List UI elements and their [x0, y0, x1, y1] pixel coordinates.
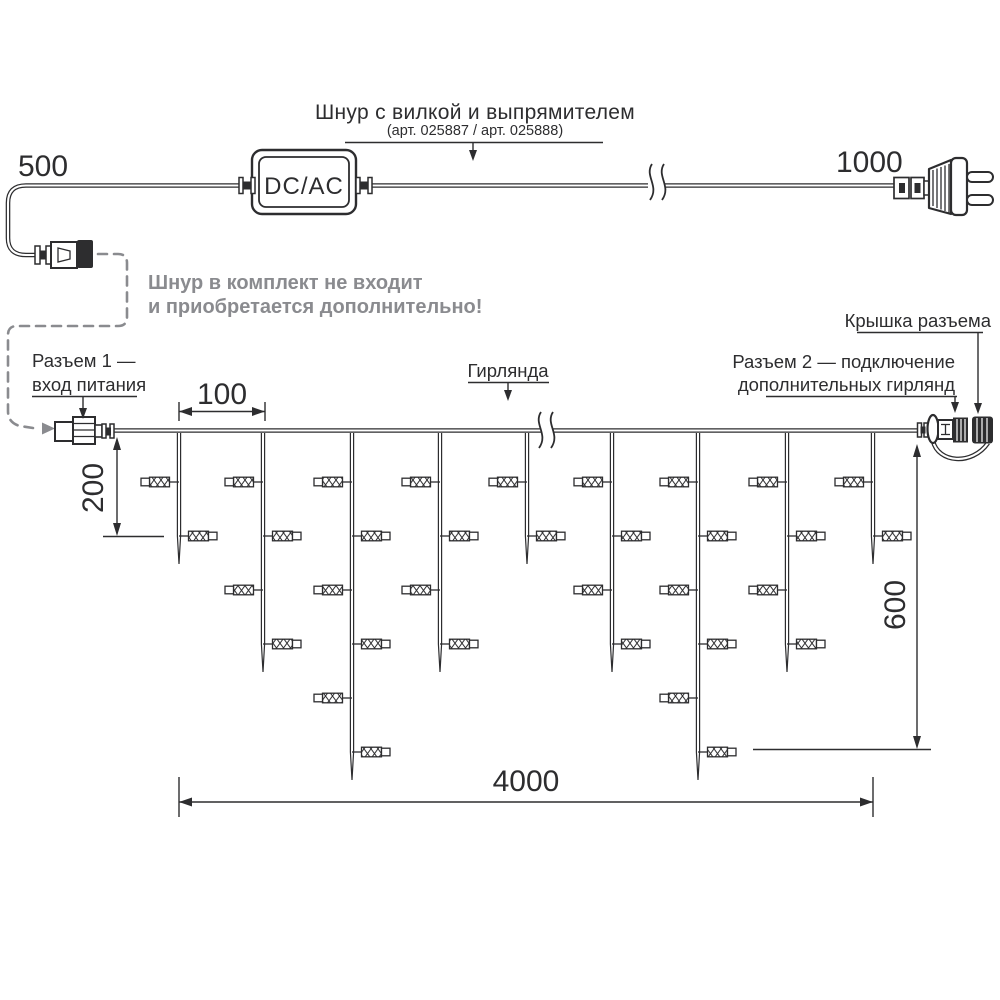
icicle-light	[612, 531, 650, 541]
light-bulb-body	[189, 531, 209, 541]
icicle-light	[440, 639, 478, 649]
light-bulb-body	[362, 639, 382, 649]
dcac-label: DC/AC	[264, 173, 344, 200]
light-bulb-cap	[402, 478, 411, 486]
dcac-left-connector	[239, 178, 255, 194]
icicle-drop-wire	[438, 433, 441, 672]
light-bulb-body	[273, 531, 293, 541]
icicle-light	[489, 477, 527, 487]
light-bulb-body	[323, 693, 343, 703]
light-bulb-body	[583, 585, 603, 595]
dim-1000-label: 1000	[836, 146, 903, 179]
light-bulb-body	[362, 747, 382, 757]
light-bulb-body	[450, 531, 470, 541]
garland-break-icon	[539, 412, 555, 448]
icicle-light	[225, 585, 263, 595]
garland-input-connector	[55, 417, 114, 444]
icicle-drops-layer	[141, 433, 911, 780]
light-bulb-body	[411, 477, 431, 487]
light-bulb-cap	[382, 748, 391, 756]
icicle-light	[314, 477, 352, 487]
dim-500-label: 500	[18, 150, 68, 183]
light-bulb-cap	[293, 640, 302, 648]
icicle-light	[749, 585, 787, 595]
icicle-light	[574, 585, 612, 595]
light-bulb-body	[273, 639, 293, 649]
light-bulb-cap	[903, 532, 912, 540]
svg-text:Крышка разъема: Крышка разъема	[845, 310, 992, 331]
light-bulb-body	[669, 693, 689, 703]
light-bulb-cap	[660, 694, 669, 702]
note-line1: Шнур в комплект не входит	[148, 272, 423, 294]
icicle-light	[873, 531, 911, 541]
icicle-drop-wire	[871, 433, 874, 564]
light-bulb-body	[669, 585, 689, 595]
light-bulb-body	[411, 585, 431, 595]
icicle-light	[612, 639, 650, 649]
dcac-converter: DC/AC	[239, 150, 372, 214]
svg-text:Разъем 1 —: Разъем 1 —	[32, 350, 136, 371]
light-bulb-body	[758, 585, 778, 595]
icicle-light	[314, 693, 352, 703]
icicle-light	[749, 477, 787, 487]
dim-600: 600	[753, 444, 931, 750]
connector-cap	[972, 417, 993, 444]
light-bulb-cap	[470, 640, 479, 648]
icicle-light	[787, 531, 825, 541]
light-bulb-cap	[835, 478, 844, 486]
icicle-light	[263, 531, 301, 541]
light-bulb-cap	[225, 478, 234, 486]
icicle-light	[402, 477, 440, 487]
light-bulb-cap	[470, 532, 479, 540]
light-bulb-body	[498, 477, 518, 487]
cord-subtitle: (арт. 025887 / арт. 025888)	[387, 123, 563, 139]
plug-prong-top	[967, 172, 993, 182]
light-bulb-body	[758, 477, 778, 487]
dim-4000: 4000	[179, 765, 873, 817]
garland-technical-diagram: DC/AC	[0, 0, 1000, 1000]
garland-end-connector	[918, 415, 994, 459]
light-bulb-body	[450, 639, 470, 649]
light-bulb-cap	[642, 532, 651, 540]
icicle-light	[787, 639, 825, 649]
light-bulb-cap	[574, 586, 583, 594]
light-bulb-cap	[660, 586, 669, 594]
icicle-drop-wire	[785, 433, 788, 672]
icicle-light	[352, 639, 390, 649]
light-bulb-body	[708, 639, 728, 649]
light-bulb-cap	[314, 478, 323, 486]
diagram-page: DC/AC	[0, 0, 1000, 1000]
light-bulb-body	[622, 639, 642, 649]
light-bulb-cap	[382, 532, 391, 540]
light-bulb-body	[323, 585, 343, 595]
plug-prong-bottom	[967, 195, 993, 205]
light-bulb-cap	[728, 640, 737, 648]
cord-output-connector	[35, 240, 93, 268]
light-bulb-cap	[749, 586, 758, 594]
icicle-drop-wire	[610, 433, 613, 672]
note-arrow-icon	[42, 423, 55, 435]
icicle-drop-wire	[350, 433, 353, 780]
light-bulb-cap	[817, 640, 826, 648]
icicle-light	[352, 747, 390, 757]
garland-assembly: Разъем 1 — вход питания Гирлянда Крышка …	[32, 310, 993, 817]
svg-text:вход питания: вход питания	[32, 374, 146, 395]
light-bulb-body	[234, 477, 254, 487]
light-bulb-cap	[749, 478, 758, 486]
icicle-light	[574, 477, 612, 487]
icicle-light	[698, 747, 736, 757]
light-bulb-cap	[728, 532, 737, 540]
light-bulb-body	[583, 477, 603, 487]
light-bulb-cap	[642, 640, 651, 648]
light-bulb-body	[537, 531, 557, 541]
light-bulb-body	[797, 639, 817, 649]
icicle-light	[660, 693, 698, 703]
light-bulb-cap	[382, 640, 391, 648]
light-bulb-cap	[209, 532, 218, 540]
light-bulb-cap	[574, 478, 583, 486]
svg-text:600: 600	[879, 580, 912, 630]
light-bulb-body	[883, 531, 903, 541]
light-bulb-cap	[314, 694, 323, 702]
light-bulb-cap	[489, 478, 498, 486]
icicle-light	[141, 477, 179, 487]
icicle-light	[402, 585, 440, 595]
icicle-drop-wire	[261, 433, 264, 672]
light-bulb-cap	[225, 586, 234, 594]
svg-text:4000: 4000	[493, 765, 560, 798]
dcac-right-connector	[356, 178, 372, 194]
note-line2: и приобретается дополнительно!	[148, 296, 482, 318]
icicle-drop-wire	[525, 433, 528, 564]
power-plug	[894, 158, 993, 215]
icicle-drop-wire	[177, 433, 180, 564]
light-bulb-cap	[728, 748, 737, 756]
icicle-drop-wire	[696, 433, 699, 780]
light-bulb-body	[234, 585, 254, 595]
cord-title: Шнур с вилкой и выпрямителем	[315, 101, 635, 124]
svg-text:дополнительных гирлянд: дополнительных гирлянд	[738, 374, 955, 395]
connector2-label: Разъем 2 — подключение дополнительных ги…	[732, 351, 959, 413]
icicle-light	[179, 531, 217, 541]
cord-left-cable	[8, 186, 239, 256]
light-bulb-body	[669, 477, 689, 487]
icicle-light	[660, 585, 698, 595]
garland-label: Гирлянда	[467, 360, 549, 401]
light-bulb-body	[708, 747, 728, 757]
light-bulb-body	[797, 531, 817, 541]
connector1-label: Разъем 1 — вход питания	[32, 350, 146, 419]
cable-break-icon	[650, 164, 666, 200]
icicle-light	[660, 477, 698, 487]
icicle-light	[698, 531, 736, 541]
light-bulb-body	[150, 477, 170, 487]
light-bulb-body	[362, 531, 382, 541]
light-bulb-cap	[314, 586, 323, 594]
light-bulb-body	[708, 531, 728, 541]
power-cord-assembly: DC/AC	[8, 101, 993, 268]
cord-title-leader	[345, 143, 603, 162]
light-bulb-cap	[557, 532, 566, 540]
icicle-light	[352, 531, 390, 541]
light-bulb-cap	[293, 532, 302, 540]
light-bulb-cap	[141, 478, 150, 486]
icicle-light	[440, 531, 478, 541]
icicle-light	[698, 639, 736, 649]
icicle-light	[314, 585, 352, 595]
light-bulb-body	[323, 477, 343, 487]
light-bulb-cap	[817, 532, 826, 540]
svg-text:Разъем 2 — подключение: Разъем 2 — подключение	[732, 351, 955, 372]
icicle-light	[225, 477, 263, 487]
light-bulb-body	[844, 477, 864, 487]
svg-text:100: 100	[197, 378, 247, 411]
light-bulb-cap	[402, 586, 411, 594]
icicle-light	[835, 477, 873, 487]
dim-100: 100	[179, 378, 265, 421]
icicle-light	[263, 639, 301, 649]
svg-text:200: 200	[77, 463, 110, 513]
light-bulb-body	[622, 531, 642, 541]
svg-text:Гирлянда: Гирлянда	[467, 360, 549, 381]
light-bulb-cap	[660, 478, 669, 486]
icicle-light	[527, 531, 565, 541]
plug-cable-connector	[894, 178, 929, 199]
